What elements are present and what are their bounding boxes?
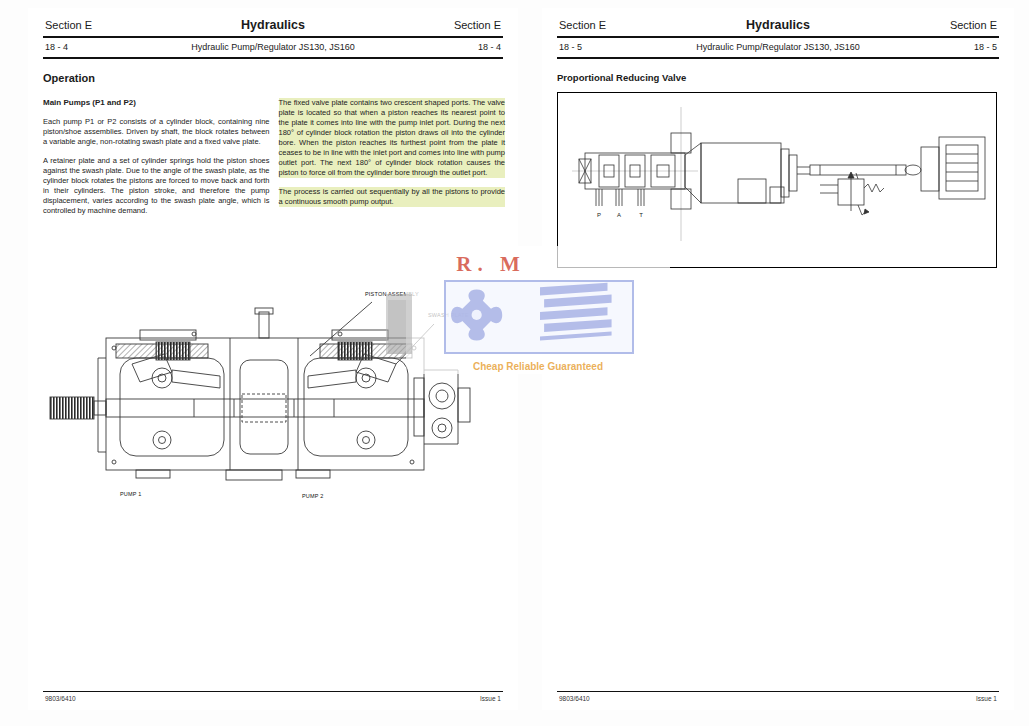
column-2: The fixed valve plate contains two cresc… (279, 98, 506, 225)
paragraph: A retainer plate and a set of cylinder s… (43, 156, 270, 216)
page-footer: 9803/6410 Issue 1 (557, 691, 999, 702)
paragraph-highlighted: The process is carried out sequentially … (279, 187, 506, 207)
page-header: Section E Hydraulics Section E 18 - 4 Hy… (43, 18, 503, 59)
body-columns: Main Pumps (P1 and P2) Each pump P1 or P… (43, 98, 505, 225)
footer-row: 9803/6410 Issue 1 (557, 695, 999, 702)
proportional-reducing-valve-drawing: P A T (558, 93, 996, 267)
main-shaft (106, 399, 424, 417)
header-subtitle: Hydraulic Pump/Regulator JS130, JS160 (696, 42, 860, 52)
proportional-reducing-valve-heading: Proportional Reducing Valve (557, 72, 686, 83)
page-header: Section E Hydraulics Section E 18 - 5 Hy… (557, 18, 999, 59)
main-pumps-subheading: Main Pumps (P1 and P2) (43, 98, 270, 108)
pump-cross-section-drawing (44, 300, 484, 488)
solenoid-body (701, 143, 781, 203)
footer-rule (557, 691, 999, 692)
footer-rule (43, 691, 503, 692)
centre-block (240, 360, 288, 454)
gear-pump-housing (424, 370, 458, 444)
piston-left (172, 370, 220, 388)
front-flange (98, 358, 106, 452)
port-label-a: A (617, 212, 621, 218)
tandem-pump-cross-section-figure: PISTON ASSEMBLY SWASH PLATE PUMP 1 PUMP … (44, 286, 500, 512)
header-page-number-left: 18 - 5 (559, 42, 582, 52)
sump (226, 470, 282, 480)
header-subtitle: Hydraulic Pump/Regulator JS130, JS160 (191, 42, 355, 52)
header-page-number-left: 18 - 4 (45, 42, 68, 52)
header-row-2: 18 - 4 Hydraulic Pump/Regulator JS130, J… (43, 38, 503, 57)
header-section-left: Section E (559, 19, 606, 31)
cable (810, 165, 906, 175)
header-row-2: 18 - 5 Hydraulic Pump/Regulator JS130, J… (557, 38, 999, 57)
valve-drawing-group: P A T (572, 107, 985, 241)
top-mount-left (140, 330, 196, 340)
issue-number: Issue 1 (976, 695, 997, 702)
input-shaft-step (94, 401, 106, 415)
manual-two-page-spread: Section E Hydraulics Section E 18 - 4 Hy… (0, 0, 1029, 726)
top-mount-right (332, 330, 388, 340)
header-rule-bottom (557, 57, 999, 59)
page-18-4: Section E Hydraulics Section E 18 - 4 Hy… (28, 8, 518, 710)
centre-shaft (259, 312, 269, 338)
page-18-5: Section E Hydraulics Section E 18 - 5 Hy… (542, 8, 1014, 710)
header-row-1: Section E Hydraulics Section E (43, 18, 503, 36)
publication-number: 9803/6410 (45, 695, 76, 702)
header-rule-bottom (43, 57, 503, 59)
port-label-p: P (597, 212, 601, 218)
piston-assembly-label: PISTON ASSEMBLY (365, 291, 419, 297)
paragraph: Each pump P1 or P2 consists of a cylinde… (43, 117, 270, 147)
issue-number: Issue 1 (480, 695, 501, 702)
pump-2-label: PUMP 2 (302, 493, 324, 499)
valve-figure-box: P A T (557, 92, 997, 268)
header-page-number-right: 18 - 5 (974, 42, 997, 52)
header-title: Hydraulics (746, 18, 810, 32)
header-section-right: Section E (454, 19, 501, 31)
port-lines (596, 189, 644, 206)
paragraph-highlighted: The fixed valve plate contains two cresc… (279, 98, 506, 178)
header-title: Hydraulics (241, 18, 305, 32)
operation-heading: Operation (43, 72, 95, 84)
pump-1-label: PUMP 1 (120, 491, 142, 497)
cable-eyelet (905, 165, 921, 175)
reducing-valve-symbol (820, 172, 884, 215)
column-1: Main Pumps (P1 and P2) Each pump P1 or P… (43, 98, 270, 225)
header-row-1: Section E Hydraulics Section E (557, 18, 999, 36)
footer-row: 9803/6410 Issue 1 (43, 695, 503, 702)
header-section-left: Section E (45, 19, 92, 31)
publication-number: 9803/6410 (559, 695, 590, 702)
swash-plate-label: SWASH PLATE (428, 312, 469, 318)
shaft-coupling (242, 394, 286, 422)
piston-right (308, 370, 356, 388)
page-footer: 9803/6410 Issue 1 (43, 691, 503, 702)
bell-housing (685, 143, 701, 203)
port-label-t: T (639, 212, 643, 218)
header-page-number-right: 18 - 4 (478, 42, 501, 52)
header-section-right: Section E (950, 19, 997, 31)
connector-neck (921, 147, 939, 191)
input-shaft-splines (50, 397, 94, 419)
